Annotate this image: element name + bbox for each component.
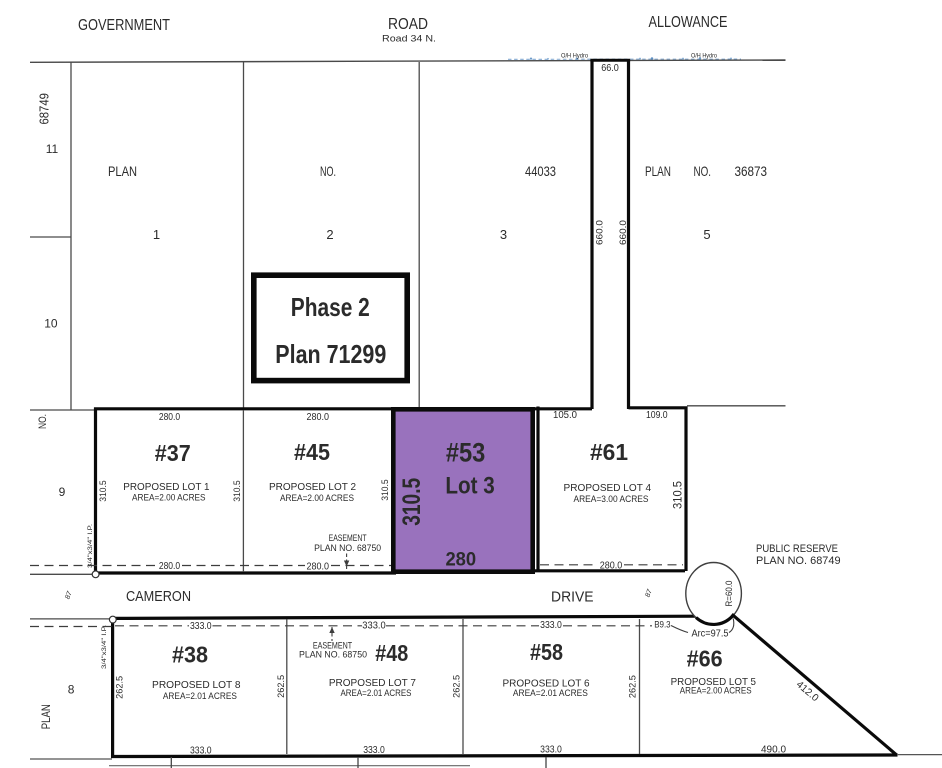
- svg-text:GOVERNMENT: GOVERNMENT: [78, 17, 170, 34]
- svg-text:R=60.0: R=60.0: [724, 581, 734, 607]
- svg-text:NO.: NO.: [694, 163, 712, 179]
- svg-text:310.5: 310.5: [232, 480, 242, 501]
- svg-text:PROPOSED LOT 2: PROPOSED LOT 2: [269, 481, 356, 493]
- svg-text:PROPOSED LOT 4: PROPOSED LOT 4: [564, 482, 652, 494]
- svg-text:NO.: NO.: [320, 163, 336, 179]
- svg-text:ALLOWANCE: ALLOWANCE: [649, 14, 728, 31]
- svg-text:PROPOSED LOT 8: PROPOSED LOT 8: [152, 679, 241, 691]
- svg-text:#37: #37: [155, 440, 191, 466]
- svg-text:DRIVE: DRIVE: [551, 589, 594, 606]
- svg-text:#58: #58: [530, 639, 563, 665]
- svg-text:280.0: 280.0: [600, 561, 623, 572]
- svg-text:262.5: 262.5: [276, 675, 286, 698]
- svg-text:#66: #66: [687, 645, 723, 671]
- svg-text:3/4"x3/4" I.P.: 3/4"x3/4" I.P.: [101, 625, 108, 669]
- svg-text:#45: #45: [294, 439, 330, 465]
- svg-text:280.0: 280.0: [159, 561, 181, 572]
- svg-text:#53: #53: [446, 437, 486, 467]
- svg-text:44033: 44033: [525, 163, 556, 179]
- svg-text:9: 9: [59, 485, 66, 499]
- svg-text:AREA=2.01 ACRES: AREA=2.01 ACRES: [163, 691, 237, 702]
- svg-text:11: 11: [46, 142, 59, 156]
- svg-text:333.0: 333.0: [190, 621, 212, 632]
- svg-text:Lot 3: Lot 3: [445, 473, 494, 500]
- svg-text:PROPOSED LOT 7: PROPOSED LOT 7: [329, 677, 416, 689]
- svg-text:109.0: 109.0: [646, 410, 668, 421]
- svg-text:2: 2: [326, 227, 333, 242]
- svg-text:PLAN: PLAN: [39, 704, 53, 729]
- svg-text:310.5: 310.5: [98, 480, 108, 501]
- svg-text:PLAN: PLAN: [108, 163, 137, 179]
- svg-text:3: 3: [500, 227, 507, 242]
- svg-text:333.0: 333.0: [362, 621, 386, 632]
- svg-text:PLAN NO. 68749: PLAN NO. 68749: [756, 555, 841, 567]
- svg-text:310.5: 310.5: [380, 479, 390, 500]
- svg-text:5: 5: [703, 227, 710, 242]
- svg-text:AREA=2.00 ACRES: AREA=2.00 ACRES: [680, 685, 752, 696]
- svg-text:CAMERON: CAMERON: [126, 588, 191, 605]
- svg-text:262.5: 262.5: [115, 676, 125, 699]
- svg-text:280.0: 280.0: [159, 412, 181, 423]
- svg-text:333.0: 333.0: [540, 620, 562, 631]
- svg-text:1: 1: [153, 227, 160, 242]
- svg-text:36873: 36873: [735, 163, 768, 179]
- svg-text:Phase 2: Phase 2: [291, 292, 370, 322]
- svg-text:AREA=2.00 ACRES: AREA=2.00 ACRES: [280, 493, 354, 504]
- svg-text:B9.3: B9.3: [654, 619, 670, 629]
- svg-text:NO.: NO.: [37, 414, 49, 429]
- svg-text:10: 10: [44, 317, 58, 331]
- svg-text:3/4"x3/4" I.P.: 3/4"x3/4" I.P.: [87, 524, 94, 568]
- svg-text:AREA=2.01 ACRES: AREA=2.01 ACRES: [513, 688, 588, 699]
- svg-text:PUBLIC RESERVE: PUBLIC RESERVE: [756, 543, 838, 555]
- svg-text:280.0: 280.0: [307, 412, 330, 423]
- svg-text:Plan 71299: Plan 71299: [275, 339, 386, 369]
- svg-text:105.0: 105.0: [553, 410, 577, 421]
- svg-text:#48: #48: [375, 640, 408, 666]
- svg-text:AREA=2.01 ACRES: AREA=2.01 ACRES: [341, 688, 412, 699]
- svg-text:660.0: 660.0: [618, 220, 628, 245]
- svg-text:Arc=97.5: Arc=97.5: [692, 628, 729, 639]
- svg-text:PROPOSED LOT 1: PROPOSED LOT 1: [123, 481, 209, 493]
- svg-text:O/H Hydro: O/H Hydro: [691, 53, 717, 60]
- svg-text:#61: #61: [590, 439, 628, 465]
- svg-text:490.0: 490.0: [761, 745, 786, 756]
- svg-text:EASEMENT: EASEMENT: [329, 533, 367, 543]
- svg-text:280: 280: [445, 550, 476, 571]
- svg-text:280.0: 280.0: [307, 561, 330, 572]
- svg-text:660.0: 660.0: [595, 220, 605, 245]
- svg-text:333.0: 333.0: [540, 745, 562, 756]
- svg-text:310.5: 310.5: [671, 481, 685, 509]
- svg-text:333.0: 333.0: [363, 745, 385, 756]
- svg-text:PLAN NO. 68750: PLAN NO. 68750: [314, 543, 381, 553]
- svg-text:8: 8: [68, 682, 75, 696]
- svg-text:Road 34 N.: Road 34 N.: [382, 34, 436, 44]
- svg-text:262.5: 262.5: [628, 675, 638, 698]
- svg-text:333.0: 333.0: [190, 746, 212, 757]
- svg-text:AREA=3.00 ACRES: AREA=3.00 ACRES: [574, 494, 649, 505]
- svg-text:262.5: 262.5: [452, 675, 462, 698]
- svg-text:66.0: 66.0: [601, 62, 619, 74]
- svg-text:PLAN NO. 68750: PLAN NO. 68750: [299, 649, 367, 659]
- svg-text:68749: 68749: [38, 93, 52, 125]
- svg-text:AREA=2.00 ACRES: AREA=2.00 ACRES: [132, 492, 206, 503]
- svg-text:ROAD: ROAD: [388, 16, 428, 33]
- svg-text:O/H Hydro: O/H Hydro: [561, 53, 588, 60]
- svg-text:#38: #38: [172, 642, 208, 668]
- svg-text:PLAN: PLAN: [645, 163, 671, 179]
- svg-text:310.5: 310.5: [398, 478, 426, 526]
